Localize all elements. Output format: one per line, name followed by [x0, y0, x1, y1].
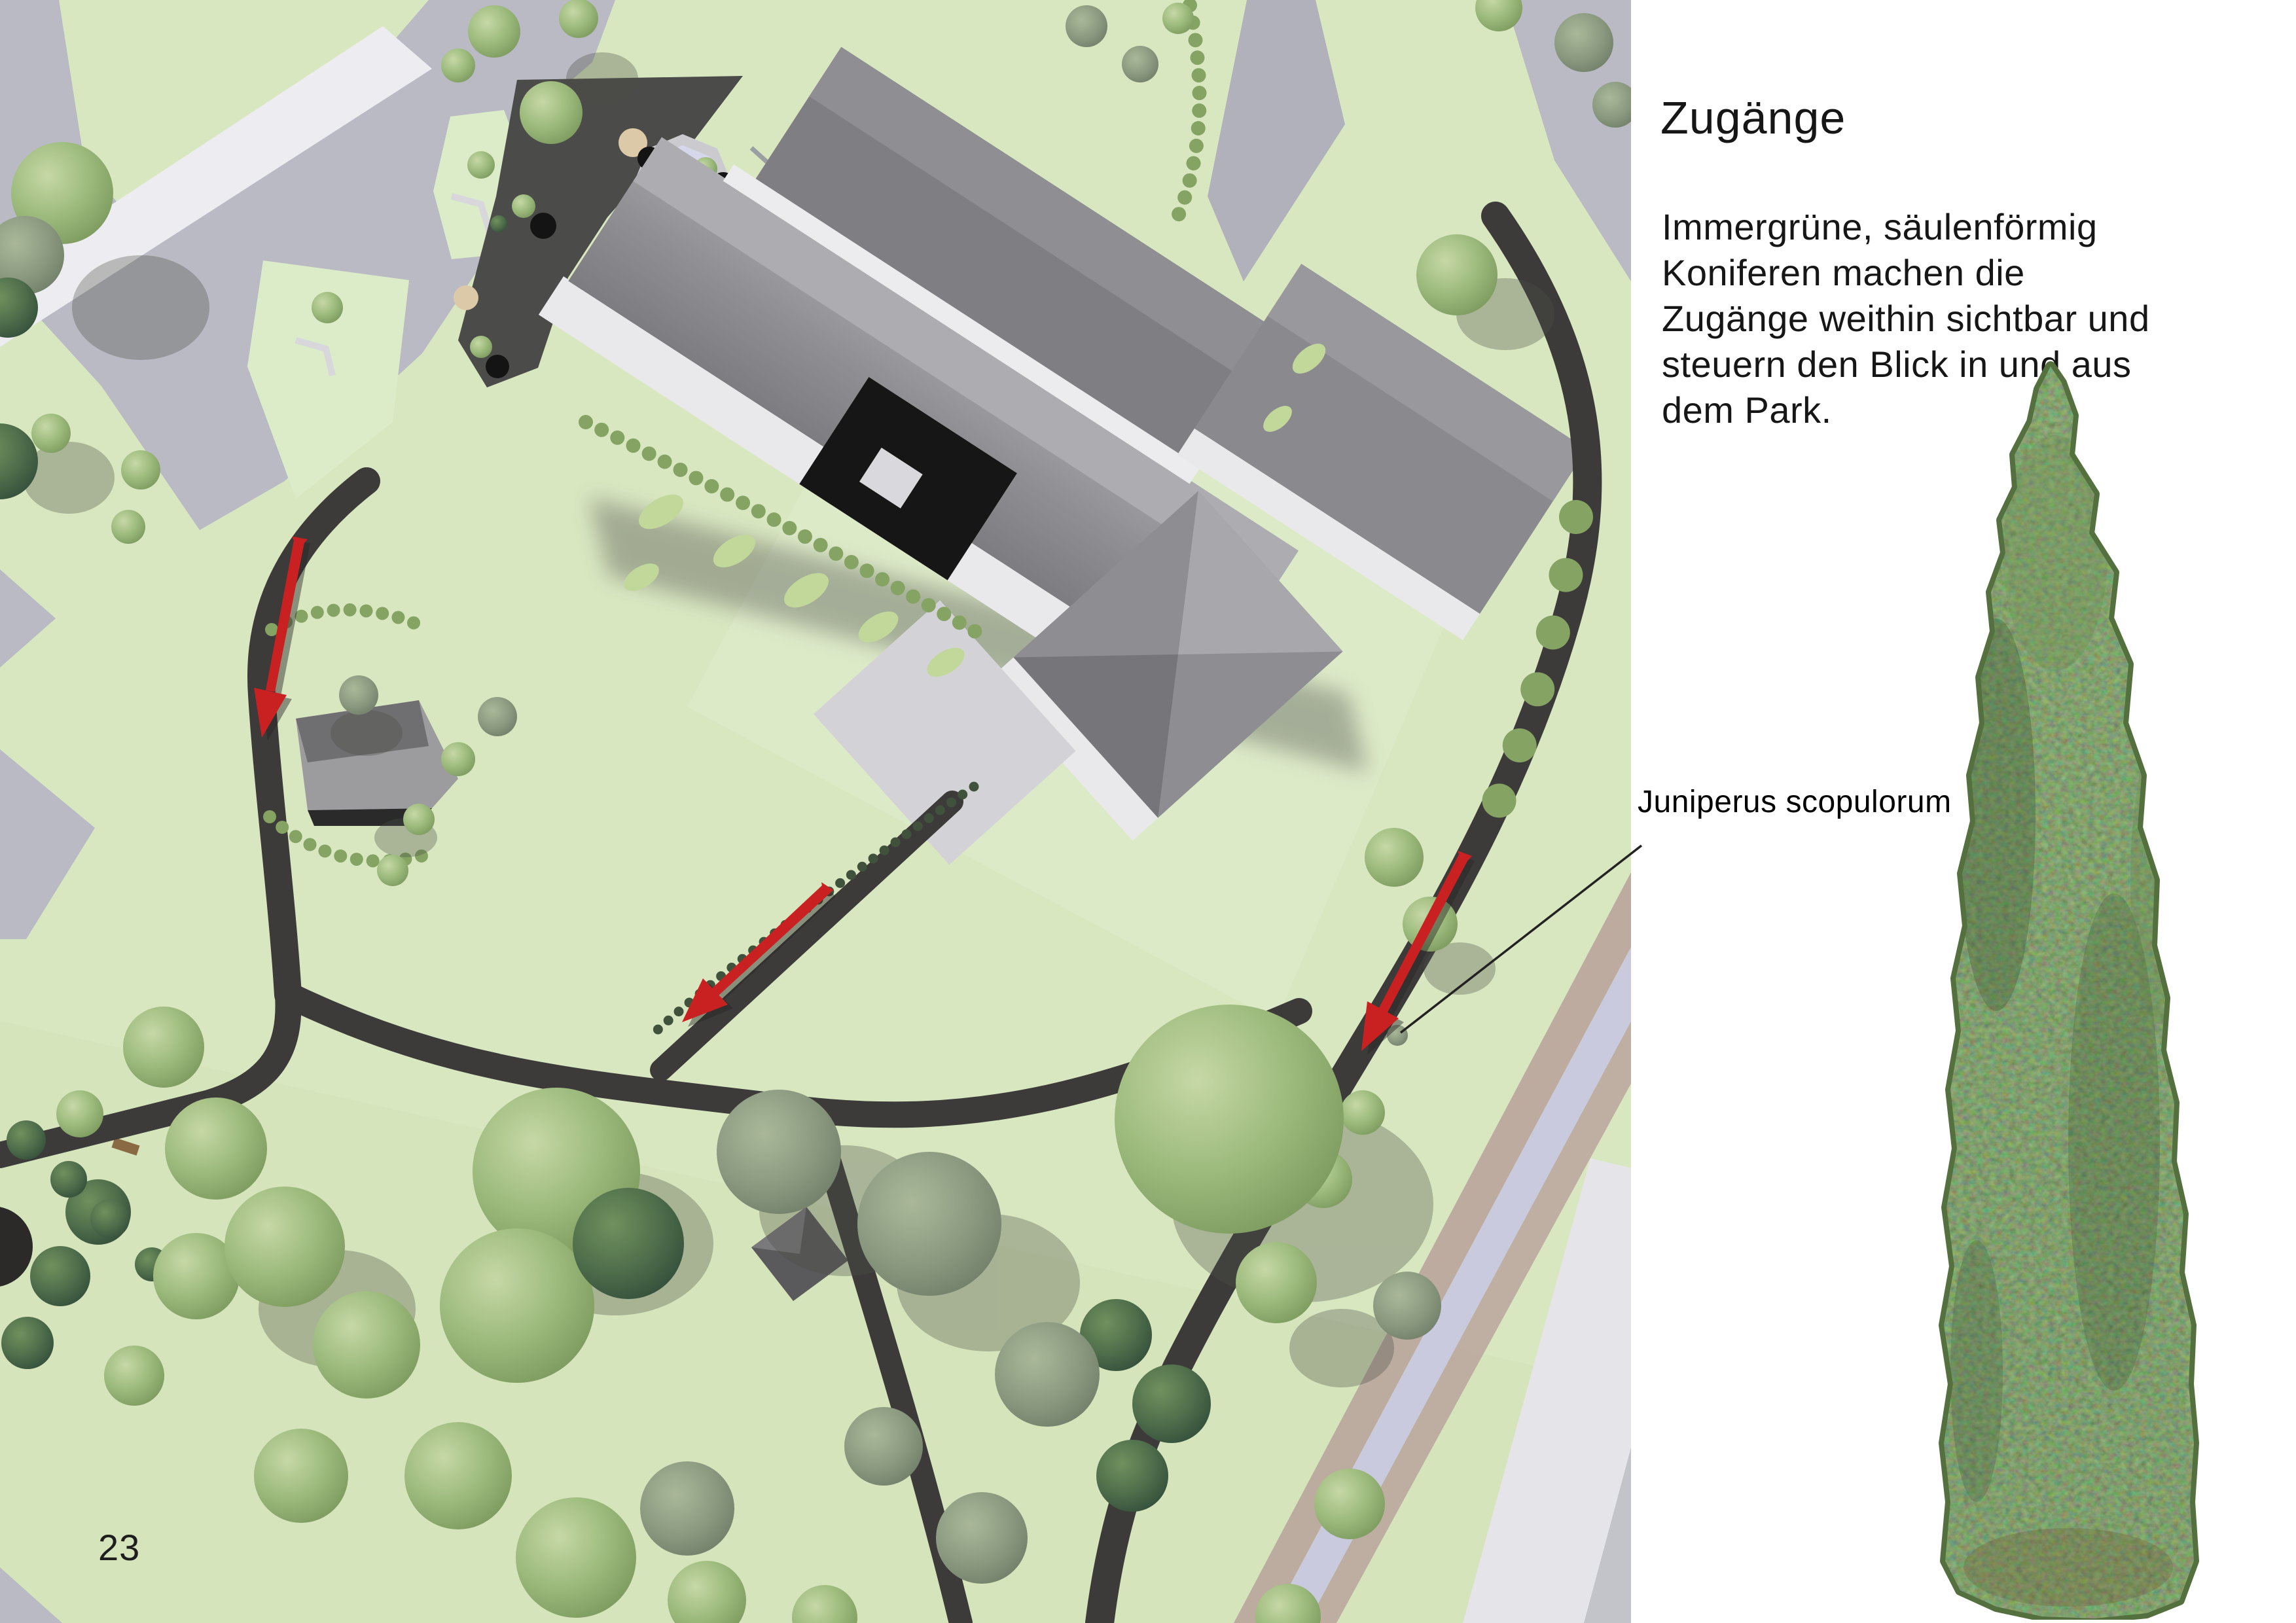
- paragraph-line: Koniferen machen die: [1662, 250, 2150, 296]
- paragraph-line: Immergrüne, säulenförmig: [1662, 204, 2150, 250]
- site-plan: 23: [0, 0, 1631, 1623]
- site-plan-canvas: [0, 0, 1631, 1623]
- document-page: 23 Zugänge Immergrüne, säulenförmig Koni…: [0, 0, 2296, 1623]
- juniper-photo: [1898, 357, 2238, 1620]
- page-title: Zugänge: [1660, 92, 1846, 144]
- paragraph-line: Zugänge weithin sichtbar und: [1662, 296, 2150, 342]
- page-number: 23: [98, 1526, 140, 1569]
